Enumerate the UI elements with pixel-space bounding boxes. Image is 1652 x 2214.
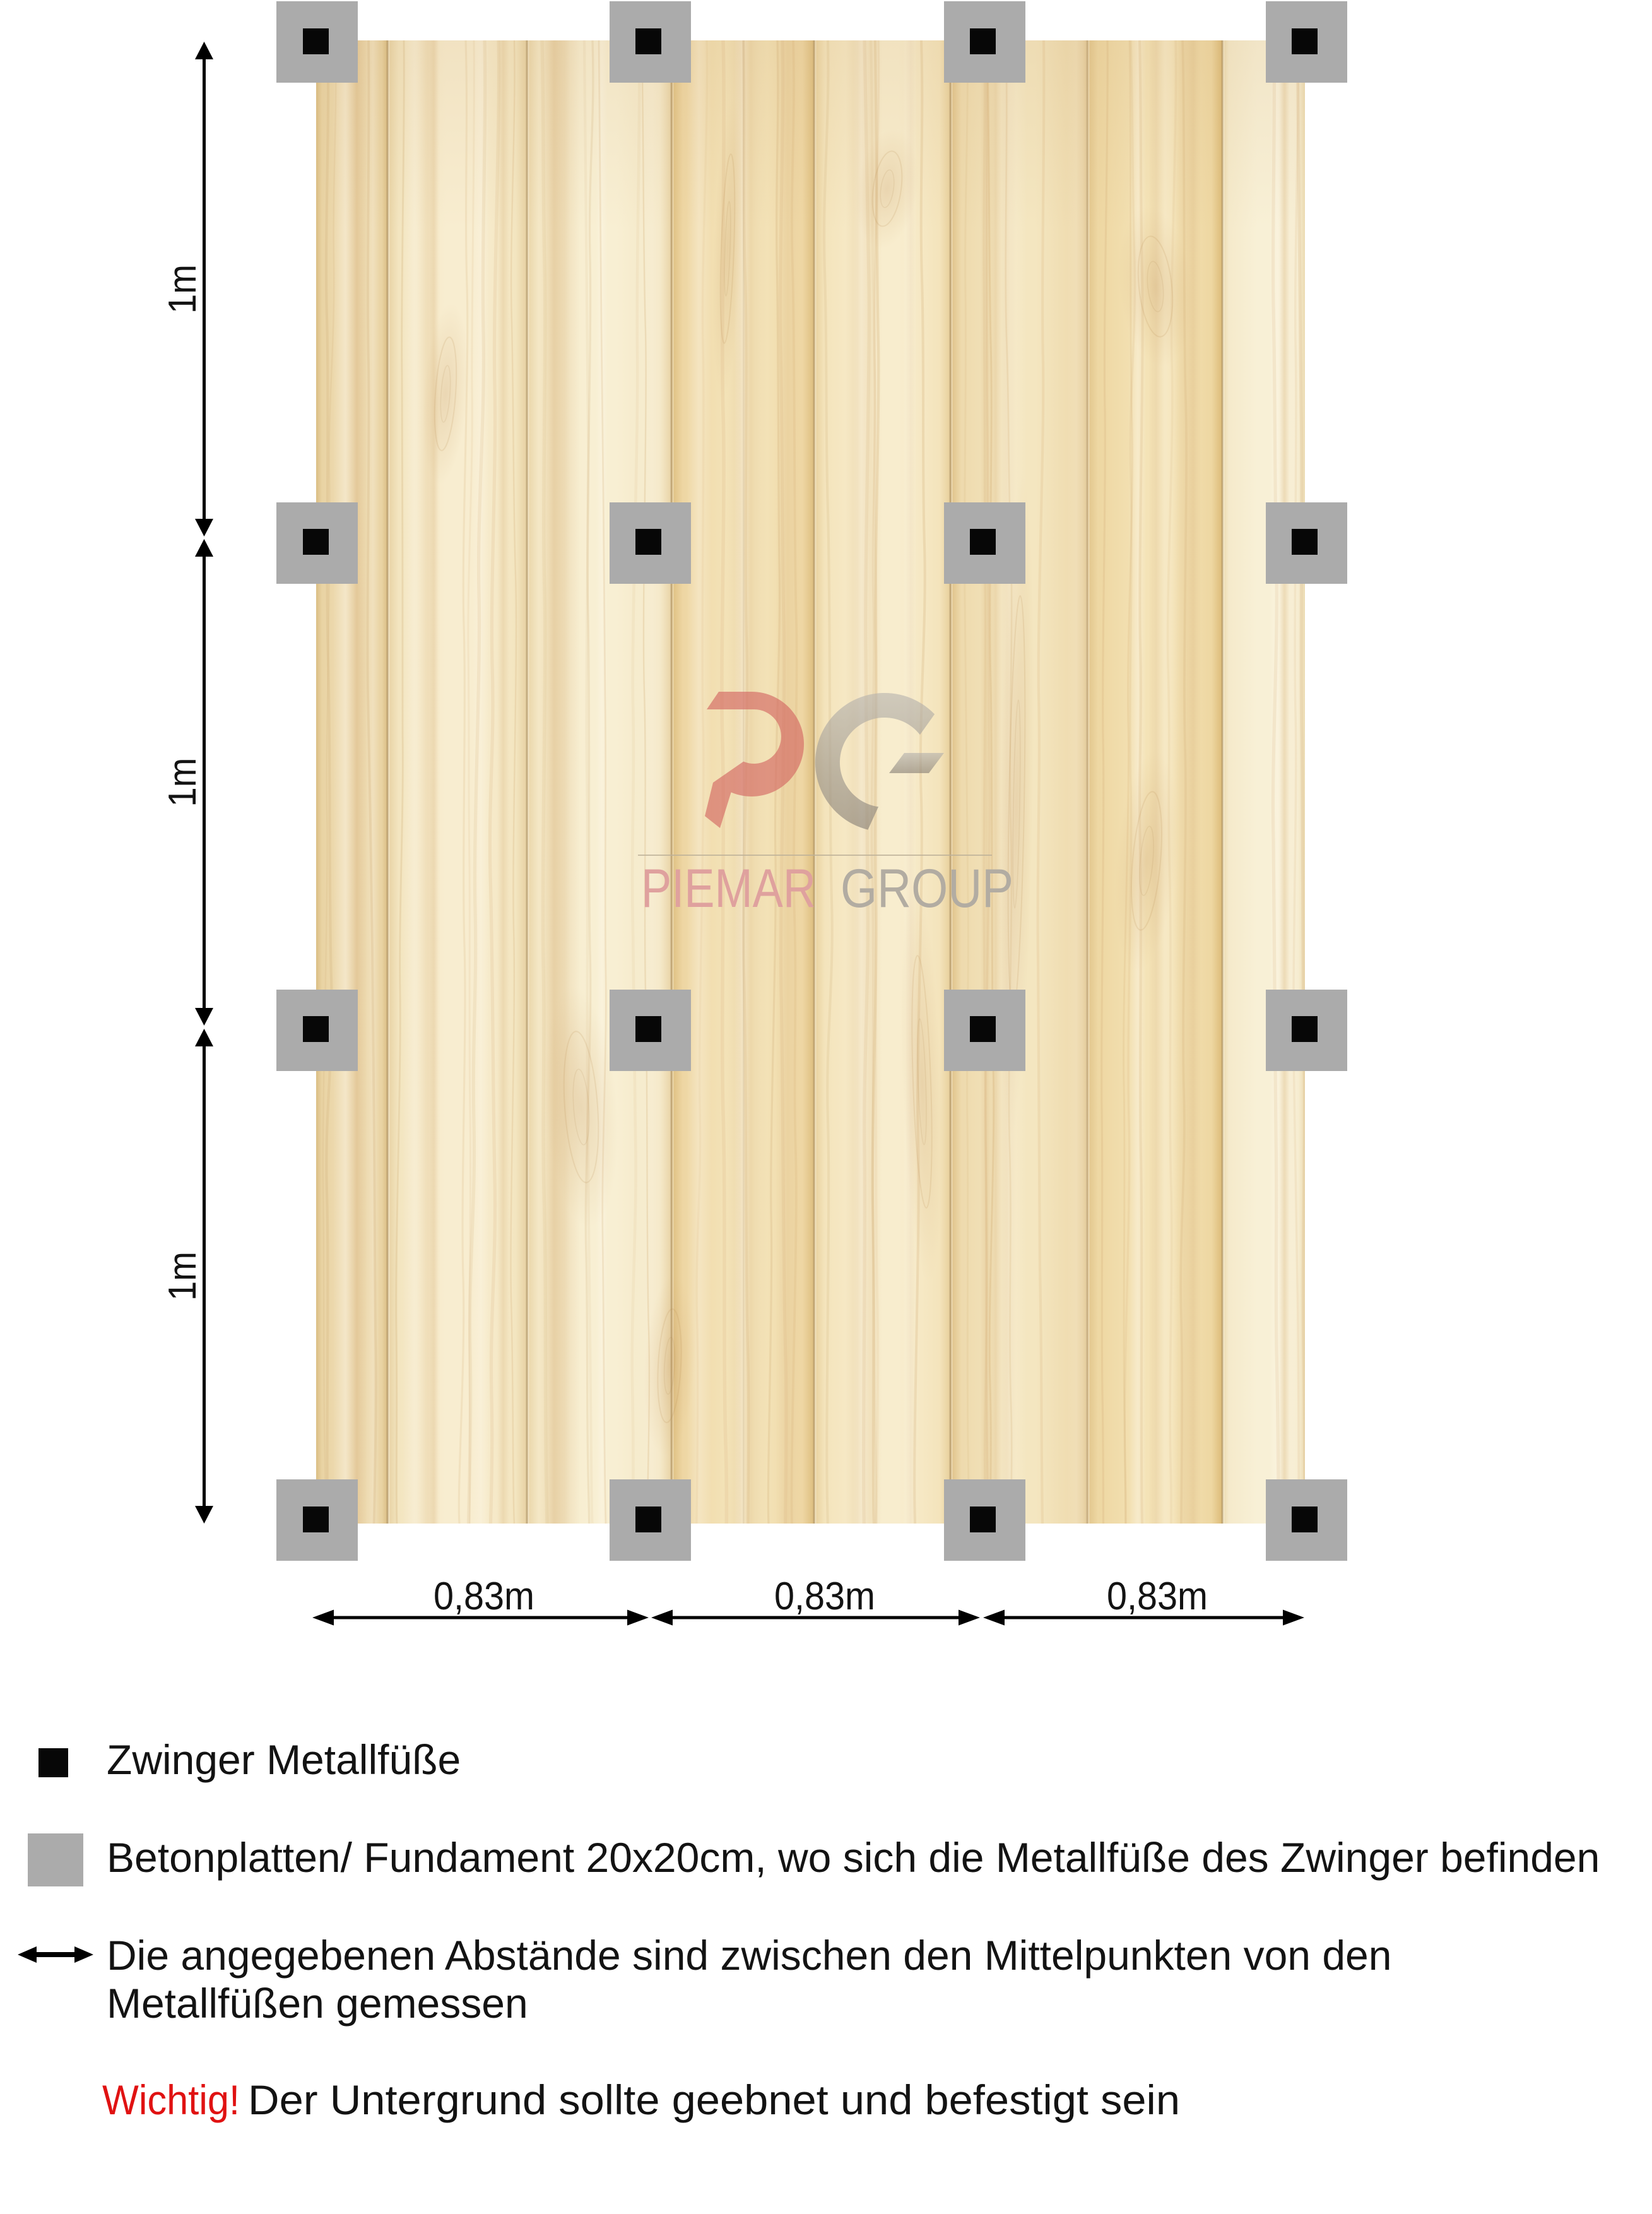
svg-text:Der Untergrund sollte geebnet: Der Untergrund sollte geebnet und befest… <box>248 2076 1180 2123</box>
svg-text:Wichtig!: Wichtig! <box>102 2076 240 2123</box>
svg-text:0,83m: 0,83m <box>774 1575 875 1618</box>
svg-text:0,83m: 0,83m <box>434 1575 534 1618</box>
svg-text:Die angegebenen Abstände sind: Die angegebenen Abstände sind zwischen d… <box>107 1932 1391 1979</box>
svg-text:0,83m: 0,83m <box>1107 1575 1208 1618</box>
svg-text:1m: 1m <box>161 1252 204 1301</box>
svg-text:Metallfüßen gemessen: Metallfüßen gemessen <box>107 1980 528 2027</box>
svg-text:1m: 1m <box>161 264 204 314</box>
svg-text:GROUP: GROUP <box>841 858 1013 919</box>
svg-text:1m: 1m <box>161 758 204 807</box>
svg-text:Zwinger Metallfüße: Zwinger Metallfüße <box>107 1736 461 1783</box>
svg-text:Betonplatten/ Fundament 20x20c: Betonplatten/ Fundament 20x20cm, wo sich… <box>107 1834 1600 1881</box>
svg-text:PIEMAR: PIEMAR <box>641 858 816 919</box>
